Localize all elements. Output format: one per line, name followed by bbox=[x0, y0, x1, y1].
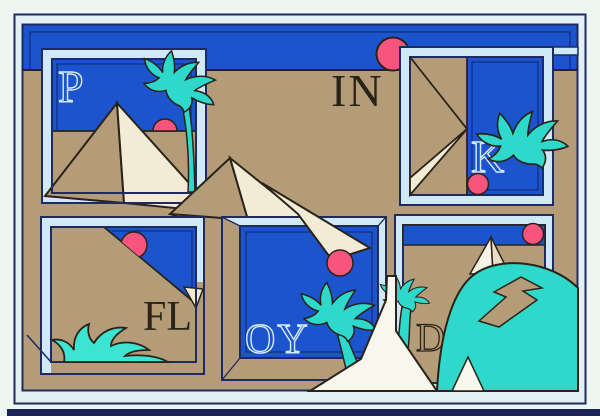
fl-right-band bbox=[196, 217, 204, 282]
fl-left-band bbox=[41, 217, 51, 374]
letter-in: IN bbox=[331, 65, 384, 116]
panel-p: P bbox=[42, 47, 220, 212]
k-sun bbox=[468, 174, 489, 195]
letter-p: P bbox=[58, 61, 84, 112]
panel-fl: FL bbox=[27, 217, 204, 374]
postcard-artwork: IN K P bbox=[0, 0, 600, 416]
oy-left-band bbox=[222, 217, 240, 380]
fl-top-band bbox=[41, 217, 204, 227]
letter-fl: FL bbox=[143, 294, 192, 340]
panel-k: K bbox=[400, 47, 572, 205]
bottom-edge-shadow bbox=[7, 409, 600, 416]
letter-oy: OY bbox=[245, 317, 310, 363]
oy-sun bbox=[327, 250, 353, 276]
d-sun bbox=[523, 224, 544, 245]
postcard: IN K P bbox=[0, 0, 600, 416]
